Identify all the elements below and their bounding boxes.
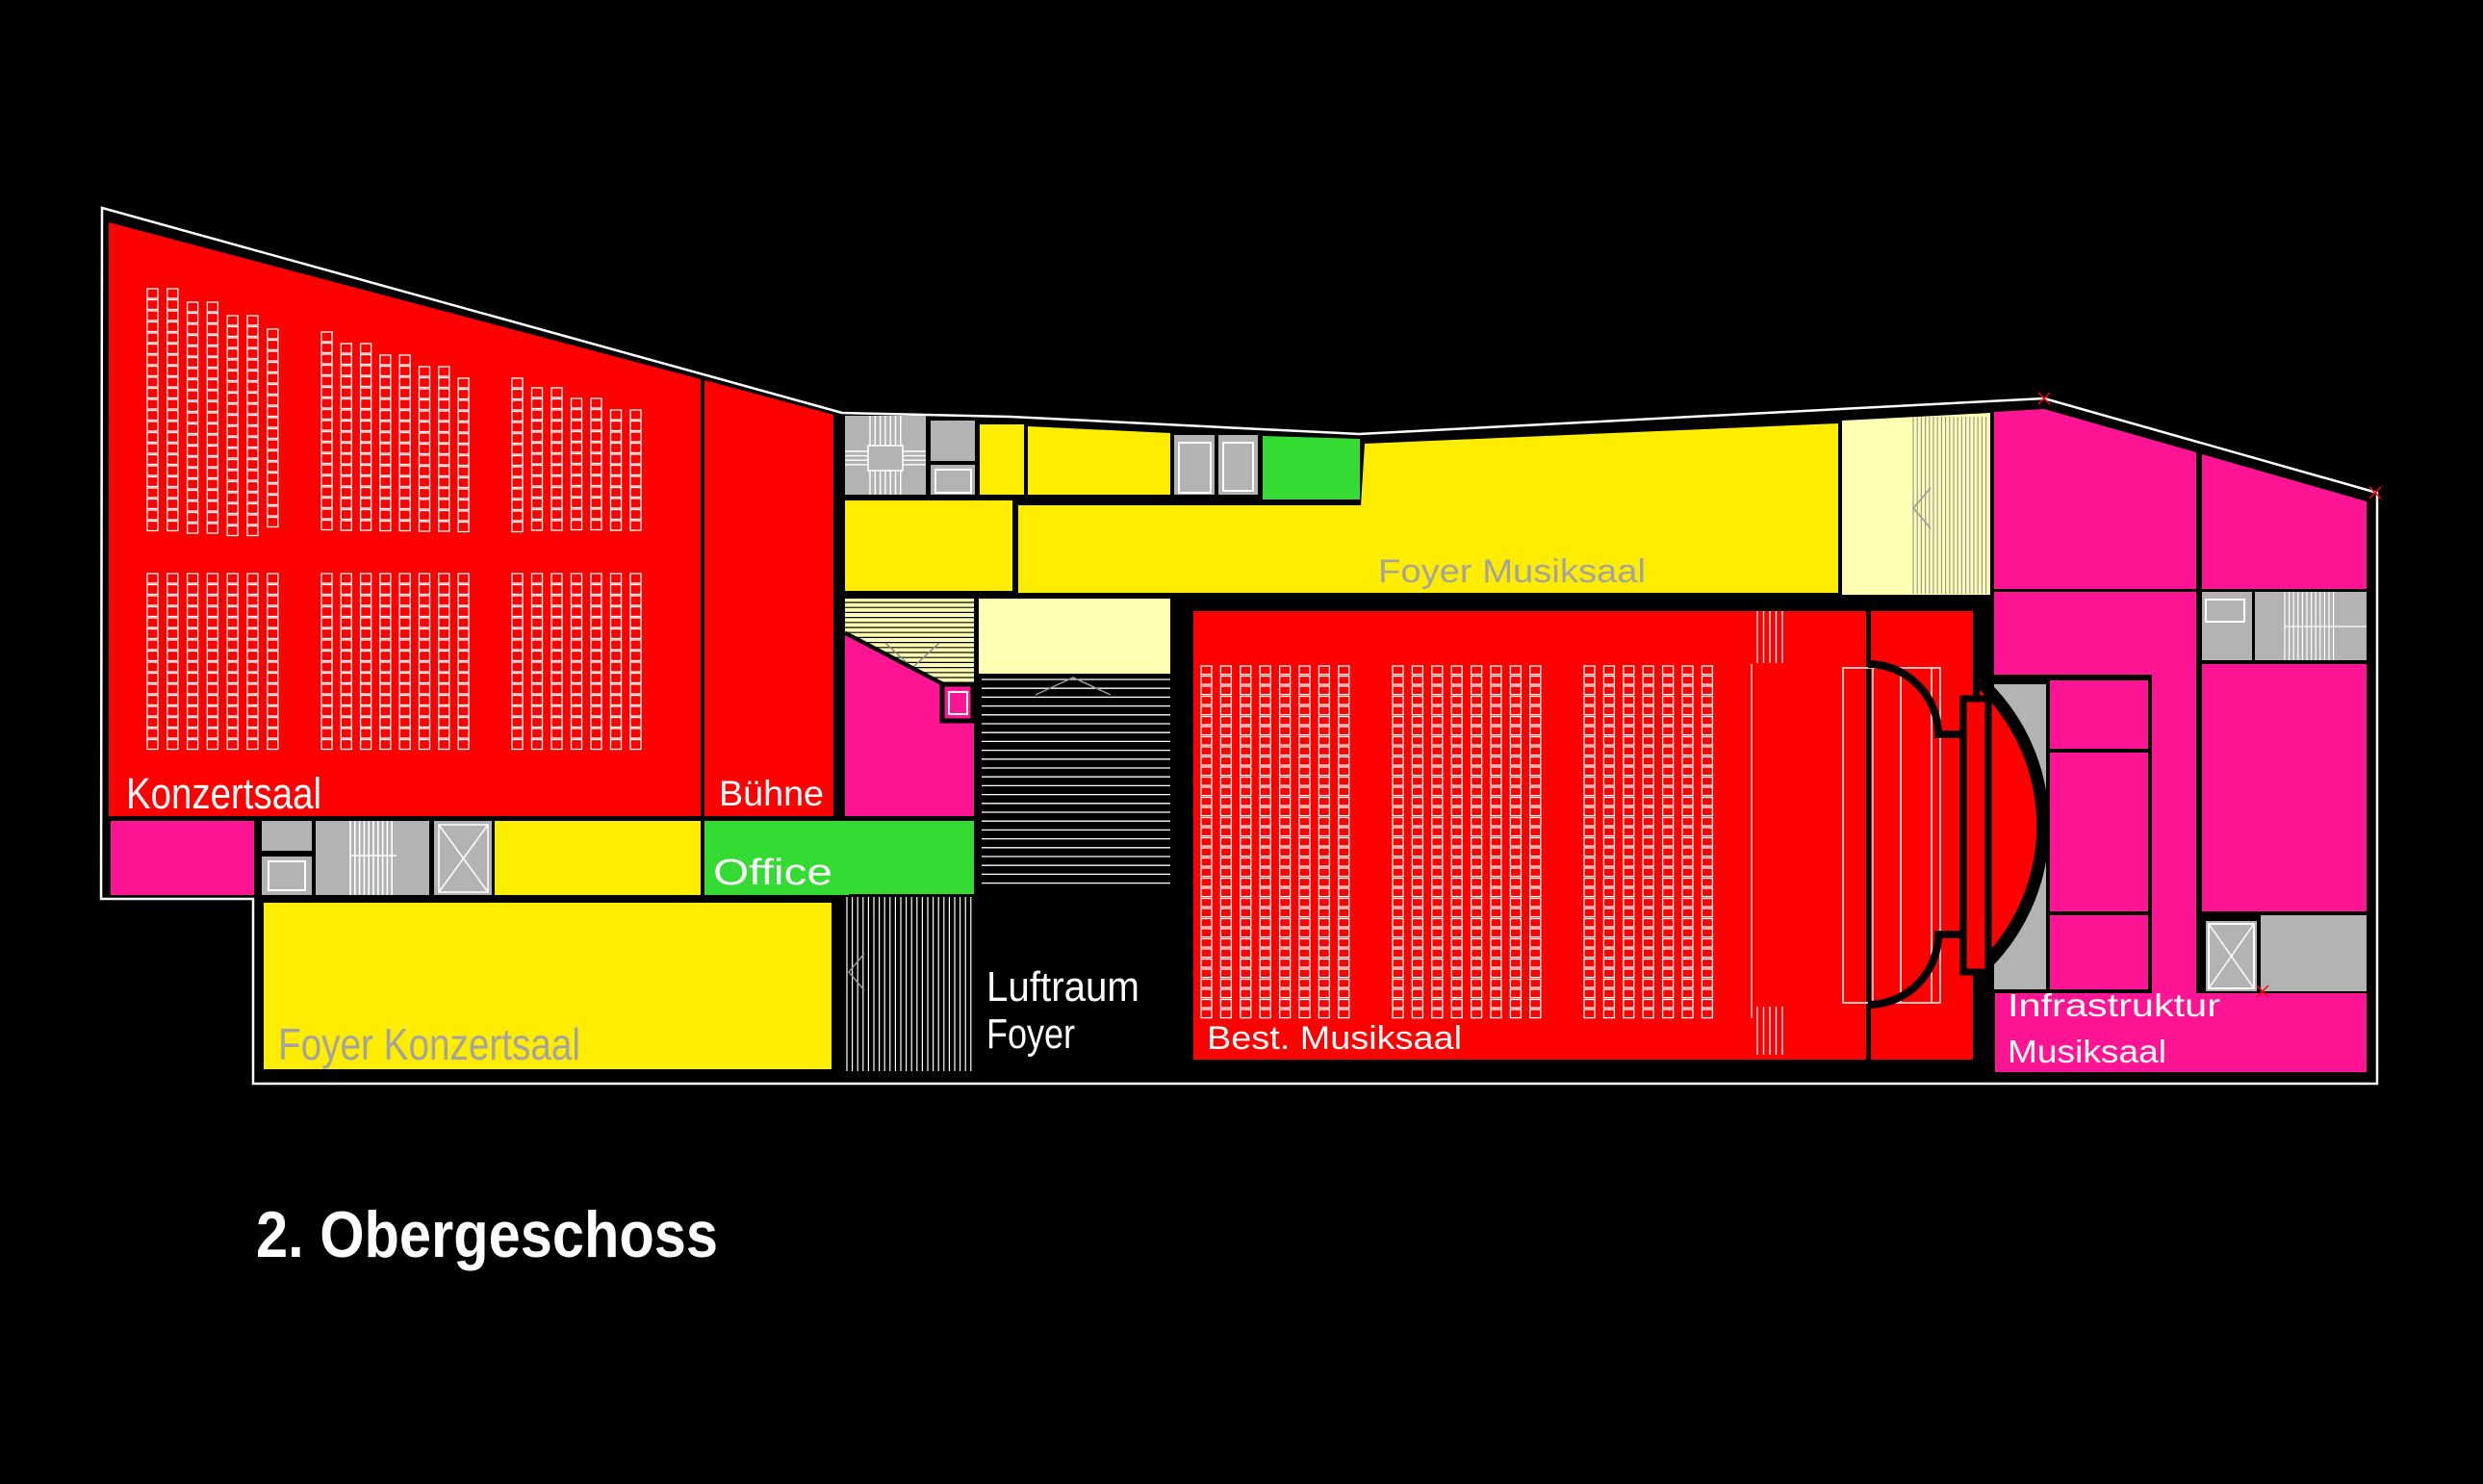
svg-text:Konzertsaal: Konzertsaal — [126, 769, 321, 818]
svg-text:Infrastruktur: Infrastruktur — [2008, 987, 2220, 1023]
svg-text:Foyer: Foyer — [986, 1011, 1075, 1058]
svg-text:2. Obergeschoss: 2. Obergeschoss — [256, 1198, 718, 1271]
svg-text:Musiksaal: Musiksaal — [2008, 1034, 2166, 1069]
svg-text:Office: Office — [713, 853, 832, 893]
svg-text:Luftraum: Luftraum — [986, 963, 1139, 1011]
svg-text:Bühne: Bühne — [719, 774, 824, 813]
svg-text:Best. Musiksaal: Best. Musiksaal — [1207, 1020, 1462, 1057]
svg-text:Foyer Konzertsaal: Foyer Konzertsaal — [278, 1019, 580, 1069]
svg-text:Foyer Musiksaal: Foyer Musiksaal — [1378, 553, 1646, 590]
